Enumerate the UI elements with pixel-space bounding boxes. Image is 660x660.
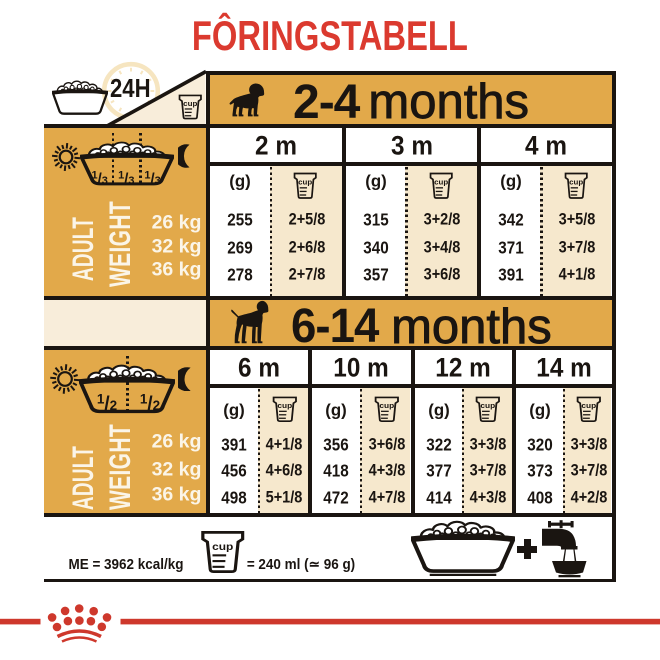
svg-text:cup: cup	[481, 401, 496, 410]
svg-text:cup: cup	[277, 401, 292, 410]
svg-text:cup: cup	[581, 401, 596, 410]
svg-text:cup: cup	[298, 177, 312, 186]
svg-text:cup: cup	[212, 542, 233, 553]
svg-text:cup: cup	[569, 177, 583, 186]
svg-text:cup: cup	[379, 401, 394, 410]
svg-text:cup: cup	[183, 99, 197, 108]
svg-text:cup: cup	[434, 177, 448, 186]
